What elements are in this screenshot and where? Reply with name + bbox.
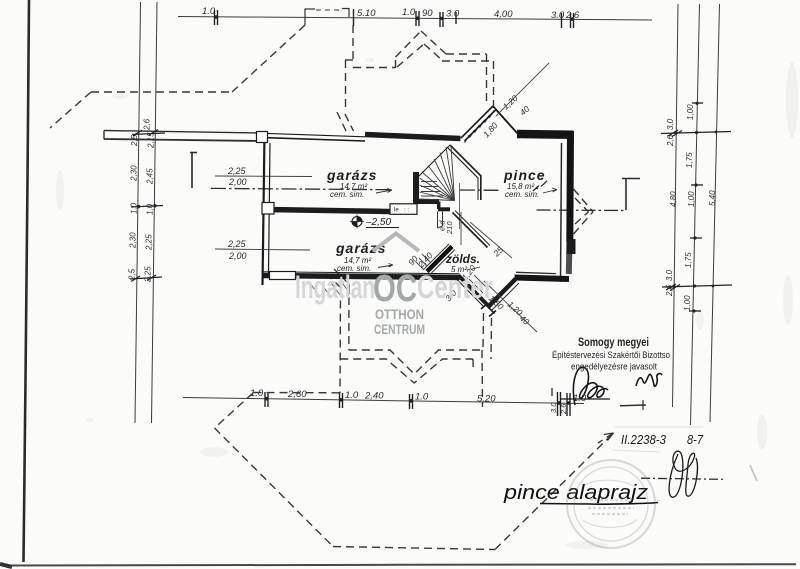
- svg-text:2,25: 2,25: [227, 239, 247, 249]
- svg-text:Ingatlan: Ingatlan: [295, 269, 375, 305]
- svg-text:1,75: 1,75: [685, 152, 694, 168]
- svg-text:2,30: 2,30: [129, 232, 138, 249]
- svg-text:–2,50: –2,50: [365, 217, 391, 228]
- svg-text:5.10: 5.10: [357, 8, 376, 19]
- svg-text:3.0: 3.0: [549, 402, 558, 413]
- svg-text:le: le: [394, 208, 399, 214]
- svg-text:2.6: 2.6: [565, 10, 580, 21]
- svg-text:OTTHON: OTTHON: [375, 307, 424, 322]
- svg-text:5,40: 5,40: [708, 190, 717, 206]
- svg-text:2,6: 2,6: [143, 118, 152, 131]
- svg-text:2,5: 2,5: [128, 268, 137, 281]
- svg-text:3.0: 3.0: [446, 9, 460, 20]
- svg-text:zölds.: zölds.: [445, 252, 480, 266]
- svg-text:garázs: garázs: [326, 167, 377, 183]
- svg-text:2,00: 2,00: [228, 251, 247, 261]
- svg-text:2,45: 2,45: [146, 168, 155, 185]
- svg-text:2,25: 2,25: [227, 166, 247, 176]
- svg-text:1.0: 1.0: [415, 392, 429, 403]
- svg-text:OC: OC: [373, 268, 417, 310]
- svg-text:2,30: 2,30: [130, 165, 139, 182]
- svg-text:2,40: 2,40: [364, 391, 384, 402]
- svg-text:1,00: 1,00: [683, 295, 692, 311]
- svg-text:3.0: 3.0: [665, 269, 674, 281]
- svg-text:: :: : :: [404, 208, 409, 214]
- svg-text:1.0: 1.0: [202, 6, 216, 17]
- svg-text:1,75: 1,75: [684, 252, 693, 268]
- svg-text:pince: pince: [503, 167, 546, 183]
- svg-text:1,0: 1,0: [146, 203, 155, 215]
- svg-text:2,25: 2,25: [145, 234, 154, 251]
- svg-text:2,5: 2,5: [130, 134, 139, 147]
- svg-text:8-7: 8-7: [687, 433, 704, 447]
- svg-text:cem. sim.: cem. sim.: [330, 190, 364, 199]
- svg-text:2,00: 2,00: [228, 177, 247, 187]
- svg-text:Somogy megyei: Somogy megyei: [578, 337, 649, 349]
- svg-text:2,6: 2,6: [665, 284, 674, 297]
- svg-text:1,00: 1,00: [686, 104, 695, 120]
- svg-text:e.d: e.d: [438, 220, 447, 231]
- svg-text:cem. sim.: cem. sim.: [505, 190, 539, 199]
- svg-text:4,00: 4,00: [494, 9, 513, 20]
- svg-text:2,6: 2,6: [559, 403, 568, 415]
- svg-text:5,20: 5,20: [477, 394, 496, 405]
- svg-text:4,80: 4,80: [669, 191, 678, 207]
- svg-text:2,25: 2,25: [144, 266, 153, 283]
- svg-text:3.0: 3.0: [666, 118, 675, 130]
- svg-text:II.2238-3: II.2238-3: [621, 433, 666, 447]
- svg-text:Center: Center: [417, 269, 493, 305]
- svg-text:1.0: 1.0: [402, 7, 416, 18]
- svg-text:2,60: 2,60: [287, 389, 307, 400]
- svg-text:2,6: 2,6: [666, 134, 675, 147]
- svg-text:CENTRUM: CENTRUM: [374, 322, 425, 337]
- svg-text:90: 90: [422, 8, 433, 19]
- svg-text:1,00: 1,00: [687, 191, 696, 207]
- svg-text:Építéstervezési Szakértői Bizo: Építéstervezési Szakértői Bizottso: [552, 350, 670, 360]
- svg-text:3.0: 3.0: [551, 10, 565, 21]
- svg-text:1.0: 1.0: [345, 390, 359, 401]
- svg-text:1,0: 1,0: [130, 202, 139, 214]
- svg-text:engedélyezésre javasolt: engedélyezésre javasolt: [571, 362, 657, 372]
